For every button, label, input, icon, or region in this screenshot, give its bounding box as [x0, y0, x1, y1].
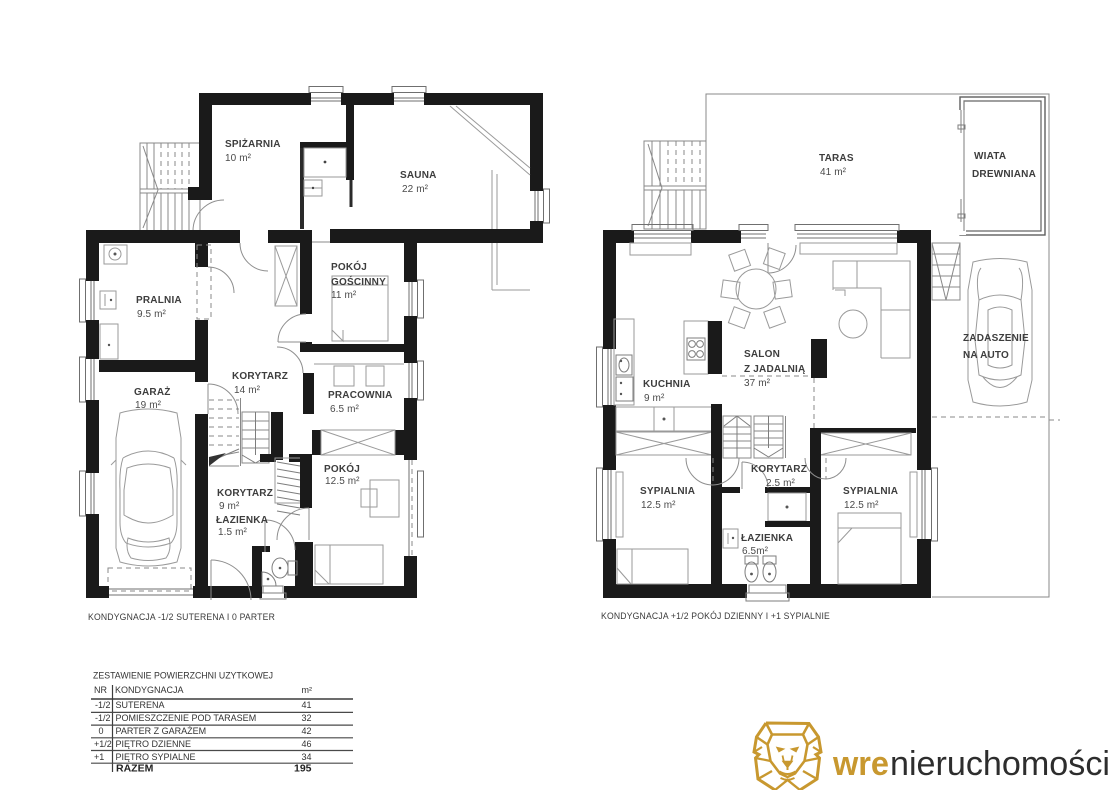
svg-text:Z JADALNIĄ: Z JADALNIĄ	[744, 364, 805, 375]
svg-text:-1/2: -1/2	[95, 700, 111, 710]
svg-text:+1/2: +1/2	[94, 739, 112, 749]
svg-text:SYPIALNIA: SYPIALNIA	[640, 486, 695, 497]
svg-text:GARAŻ: GARAŻ	[134, 385, 171, 398]
svg-text:34: 34	[302, 752, 312, 762]
svg-text:PRACOWNIA: PRACOWNIA	[328, 390, 393, 401]
svg-text:KUCHNIA: KUCHNIA	[643, 379, 691, 390]
svg-text:wre: wre	[832, 745, 889, 783]
svg-text:SALON: SALON	[744, 349, 780, 360]
svg-text:RAZEM: RAZEM	[116, 763, 154, 775]
svg-text:195: 195	[294, 763, 312, 775]
svg-text:m²: m²	[302, 685, 313, 695]
svg-text:1.5 m²: 1.5 m²	[218, 527, 248, 538]
svg-text:SAUNA: SAUNA	[400, 170, 437, 181]
svg-text:DREWNIANA: DREWNIANA	[972, 169, 1036, 180]
svg-text:KORYTARZ: KORYTARZ	[217, 488, 273, 499]
svg-text:0: 0	[99, 726, 104, 736]
svg-text:41: 41	[302, 700, 312, 710]
svg-text:PRALNIA: PRALNIA	[136, 295, 182, 306]
svg-text:6.5 m²: 6.5 m²	[330, 404, 360, 415]
svg-text:SYPIALNIA: SYPIALNIA	[843, 486, 898, 497]
svg-text:GOŚCINNY: GOŚCINNY	[331, 275, 386, 288]
svg-text:KORYTARZ: KORYTARZ	[232, 371, 288, 382]
svg-text:POKÓJ: POKÓJ	[324, 462, 360, 475]
svg-text:KORYTARZ: KORYTARZ	[751, 464, 807, 475]
svg-text:WIATA: WIATA	[974, 151, 1006, 162]
svg-text:37 m²: 37 m²	[744, 378, 771, 389]
svg-text:KONDYGNACJA +1/2 POKÓJ DZIENNY: KONDYGNACJA +1/2 POKÓJ DZIENNY I +1 SYPI…	[601, 611, 830, 621]
svg-text:ŁAZIENKA: ŁAZIENKA	[216, 515, 268, 526]
svg-text:12.5 m²: 12.5 m²	[844, 500, 879, 511]
svg-text:6.5m²: 6.5m²	[742, 546, 769, 557]
svg-text:SPIŻARNIA: SPIŻARNIA	[225, 137, 281, 150]
svg-text:9.5 m²: 9.5 m²	[137, 309, 167, 320]
svg-text:22 m²: 22 m²	[402, 184, 429, 195]
svg-text:ZADASZENIE: ZADASZENIE	[963, 333, 1029, 344]
svg-text:PIĘTRO SYPIALNE: PIĘTRO SYPIALNE	[116, 752, 196, 762]
svg-text:NR: NR	[94, 685, 107, 695]
svg-text:POMIESZCZENIE POD TARASEM: POMIESZCZENIE POD TARASEM	[116, 713, 257, 723]
svg-text:KONDYGNACJA -1/2 SUTERENA I 0: KONDYGNACJA -1/2 SUTERENA I 0 PARTER	[88, 612, 275, 622]
svg-text:PIĘTRO DZIENNE: PIĘTRO DZIENNE	[116, 739, 192, 749]
svg-text:PARTER Z GARAŻEM: PARTER Z GARAŻEM	[116, 726, 207, 736]
svg-text:+1: +1	[94, 752, 104, 762]
svg-text:41 m²: 41 m²	[820, 167, 847, 178]
svg-text:nieruchomości: nieruchomości	[890, 745, 1110, 783]
svg-text:14 m²: 14 m²	[234, 385, 261, 396]
svg-text:2.5 m²: 2.5 m²	[766, 478, 796, 489]
svg-text:ZESTAWIENIE POWIERZCHNI UZYTKO: ZESTAWIENIE POWIERZCHNI UZYTKOWEJ	[93, 671, 273, 681]
svg-text:10 m²: 10 m²	[225, 153, 252, 164]
svg-text:32: 32	[302, 713, 312, 723]
svg-text:12.5 m²: 12.5 m²	[325, 476, 360, 487]
svg-text:19 m²: 19 m²	[135, 400, 162, 411]
svg-text:46: 46	[302, 739, 312, 749]
svg-text:NA AUTO: NA AUTO	[963, 350, 1009, 361]
svg-text:SUTERENA: SUTERENA	[116, 700, 165, 710]
svg-text:11 m²: 11 m²	[331, 290, 357, 301]
svg-text:12.5 m²: 12.5 m²	[641, 500, 676, 511]
svg-text:42: 42	[302, 726, 312, 736]
svg-text:ŁAZIENKA: ŁAZIENKA	[741, 533, 793, 544]
svg-text:POKÓJ: POKÓJ	[331, 260, 367, 273]
svg-text:9 m²: 9 m²	[219, 501, 240, 512]
svg-text:KONDYGNACJA: KONDYGNACJA	[115, 685, 184, 695]
svg-text:-1/2: -1/2	[95, 713, 111, 723]
svg-text:TARAS: TARAS	[819, 153, 854, 164]
svg-text:9 m²: 9 m²	[644, 393, 665, 404]
